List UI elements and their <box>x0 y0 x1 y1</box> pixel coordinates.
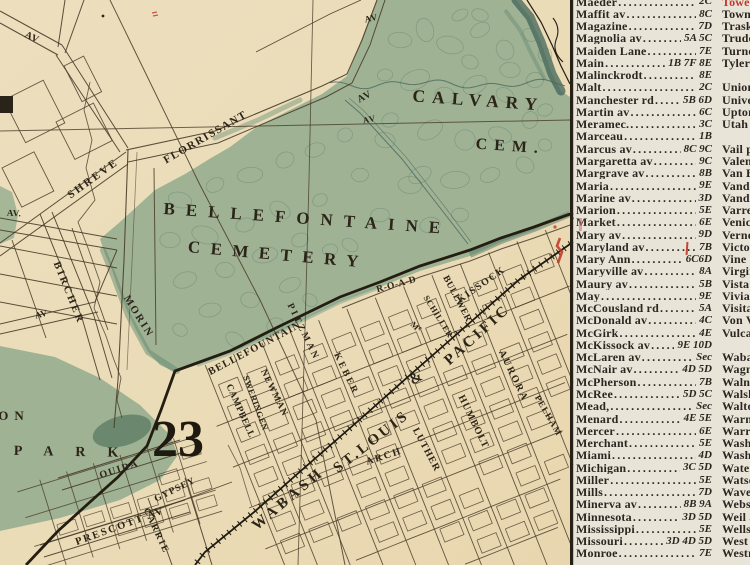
svg-text:AV.: AV. <box>7 208 22 219</box>
svg-text:PARK: PARK <box>14 444 141 461</box>
svg-text:23: 23 <box>152 411 204 468</box>
svg-text:ON: ON <box>0 408 30 423</box>
